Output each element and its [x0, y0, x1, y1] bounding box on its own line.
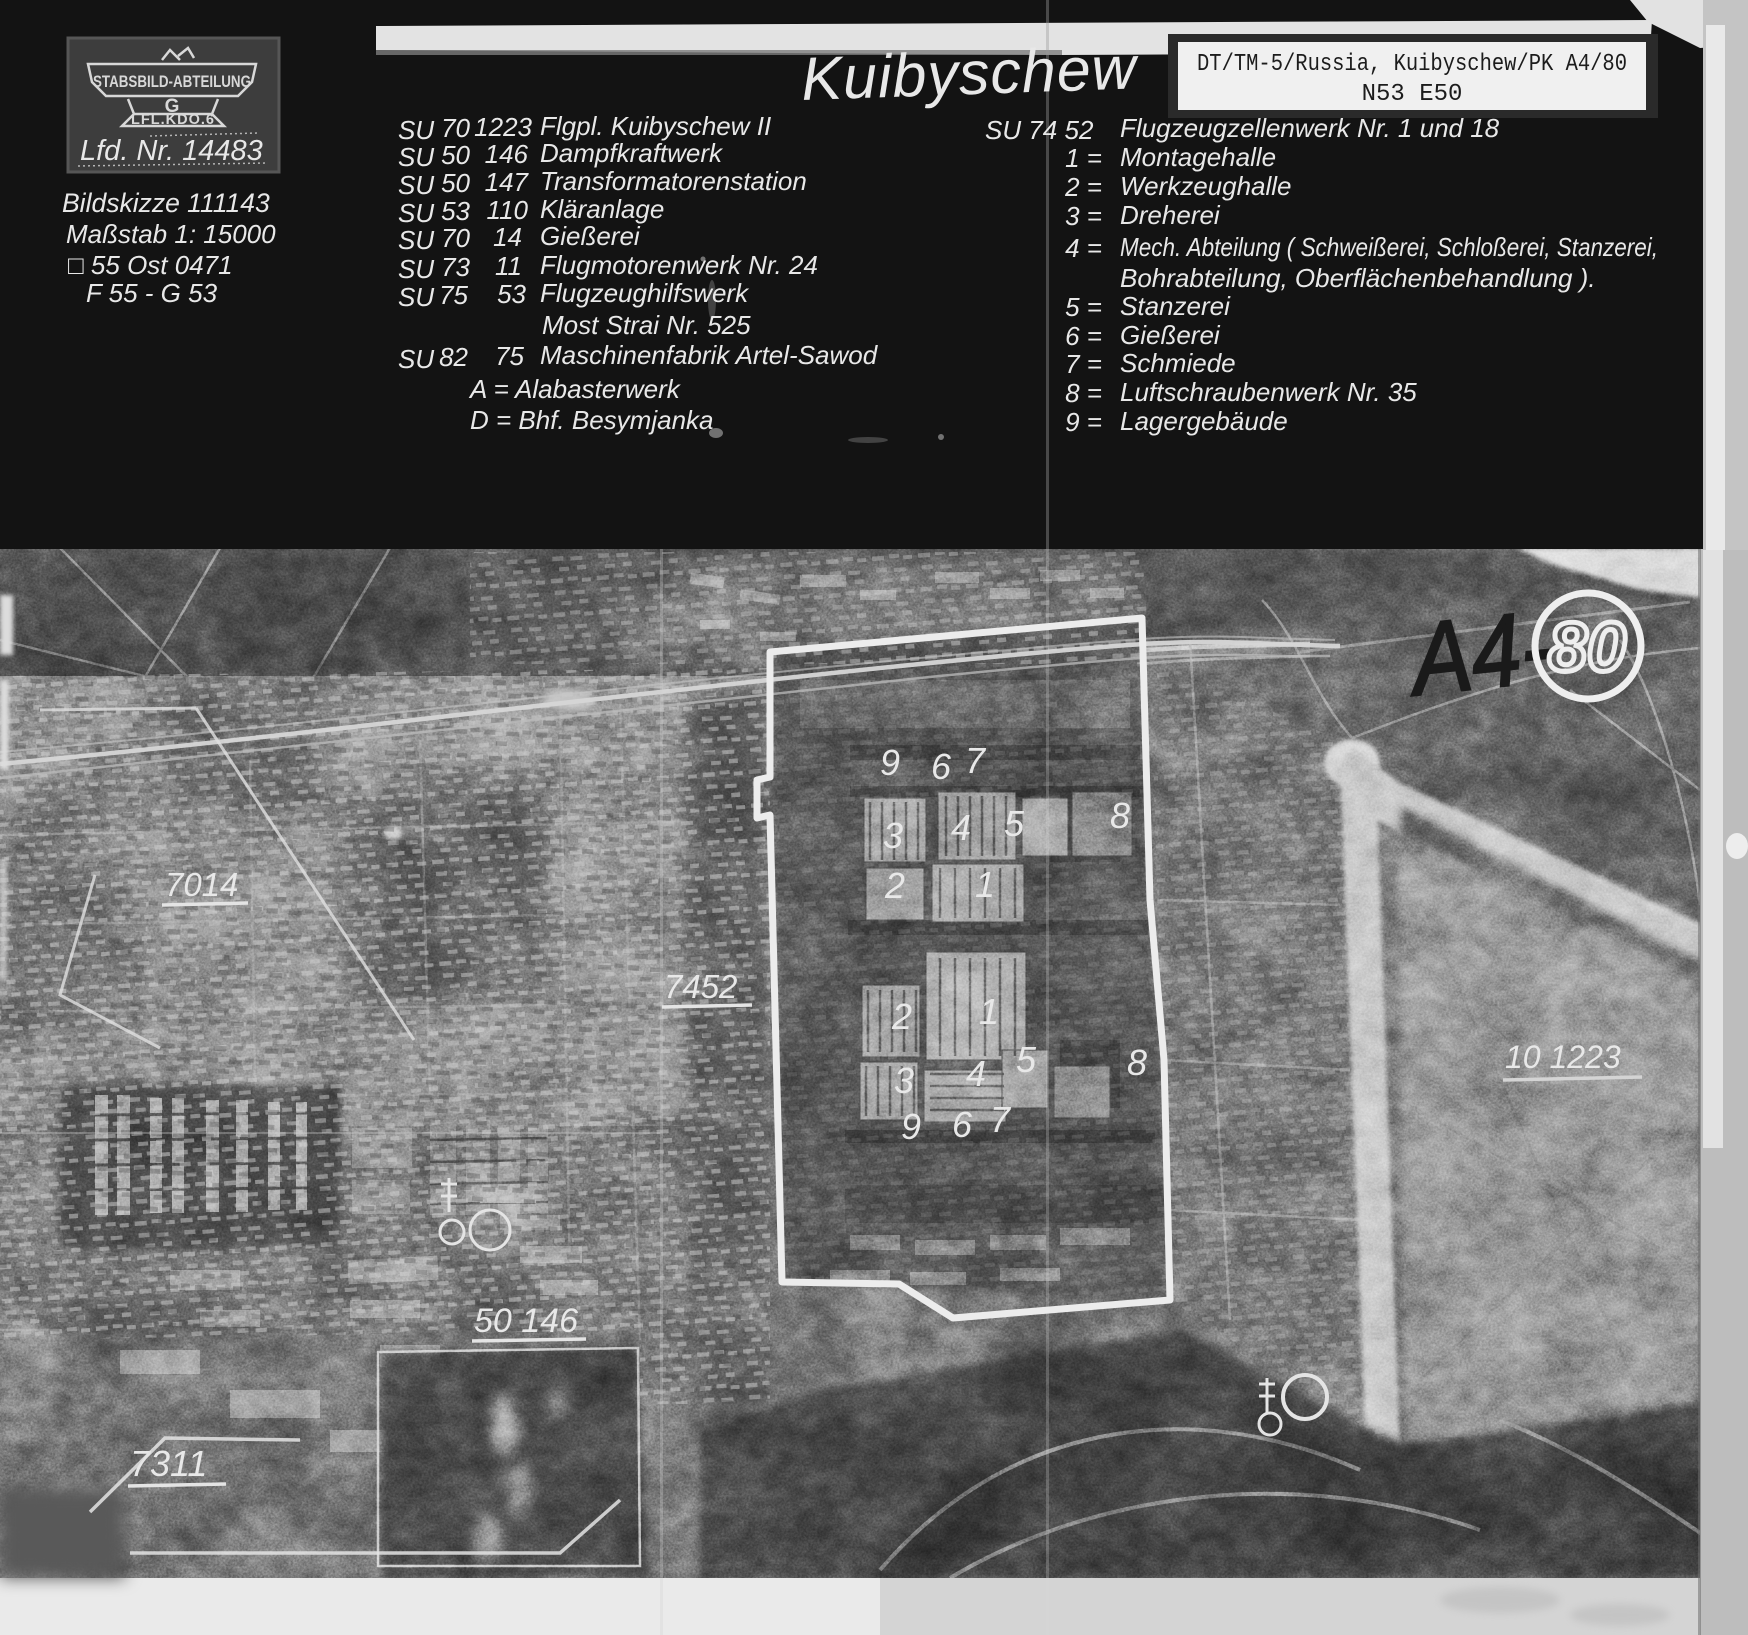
svg-text:SU: SU — [398, 115, 434, 145]
svg-text:14: 14 — [493, 222, 522, 252]
svg-text:9: 9 — [901, 1106, 921, 1147]
svg-text:Flugmotorenwerk Nr. 24: Flugmotorenwerk Nr. 24 — [540, 250, 818, 280]
svg-text:2: 2 — [884, 865, 905, 906]
svg-text:75: 75 — [495, 341, 524, 371]
svg-text:8: 8 — [1127, 1042, 1147, 1083]
svg-text:4 =: 4 = — [1065, 233, 1102, 263]
svg-text:6: 6 — [952, 1104, 973, 1145]
svg-text:Gießerei: Gießerei — [540, 221, 641, 251]
svg-text:SU: SU — [398, 344, 434, 374]
svg-text:Transformatorenstation: Transformatorenstation — [540, 166, 807, 196]
svg-text:1: 1 — [979, 991, 999, 1032]
svg-text:STABSBILD-ABTEILUNG: STABSBILD-ABTEILUNG — [93, 72, 251, 91]
svg-text:10 1223: 10 1223 — [1505, 1039, 1621, 1075]
svg-text:5 =: 5 = — [1065, 292, 1102, 322]
svg-text:LFL.KDO.6: LFL.KDO.6 — [131, 112, 215, 128]
svg-text:4: 4 — [951, 807, 971, 848]
svg-text:8: 8 — [1110, 795, 1130, 836]
svg-text:Flugzeughilfswerk: Flugzeughilfswerk — [540, 278, 750, 308]
svg-text:5: 5 — [1004, 803, 1025, 844]
svg-text:Flgpl. Kuibyschew II: Flgpl. Kuibyschew II — [540, 111, 771, 141]
svg-text:53: 53 — [441, 196, 470, 226]
svg-text:147: 147 — [485, 167, 530, 197]
svg-text:D = Bhf. Besymjanka: D = Bhf. Besymjanka — [470, 405, 714, 435]
svg-text:Maschinenfabrik Artel-Sawod: Maschinenfabrik Artel-Sawod — [540, 340, 879, 370]
svg-text:70: 70 — [441, 113, 470, 143]
svg-text:SU: SU — [398, 170, 434, 200]
svg-text:□ 55 Ost 0471: □ 55 Ost 0471 — [68, 250, 233, 280]
svg-text:82: 82 — [439, 342, 468, 372]
svg-text:53: 53 — [497, 279, 526, 309]
svg-text:Kuibyschew: Kuibyschew — [800, 33, 1141, 113]
svg-text:Montagehalle: Montagehalle — [1120, 142, 1276, 172]
svg-text:11: 11 — [495, 251, 522, 281]
svg-text:9 =: 9 = — [1065, 407, 1102, 437]
svg-text:SU: SU — [398, 198, 434, 228]
svg-text:SU: SU — [398, 225, 434, 255]
svg-text:Lagergebäude: Lagergebäude — [1120, 406, 1288, 436]
svg-text:Dampfkraftwerk: Dampfkraftwerk — [540, 138, 724, 168]
svg-text:146: 146 — [485, 139, 529, 169]
svg-text:Bohrabteilung, Oberflächenbeha: Bohrabteilung, Oberflächenbehandlung ). — [1120, 263, 1596, 293]
svg-text:70: 70 — [441, 223, 470, 253]
svg-text:DT/TM-5/Russia, Kuibyschew/PK: DT/TM-5/Russia, Kuibyschew/PK A4/80 — [1197, 51, 1627, 78]
svg-text:3: 3 — [883, 815, 903, 856]
svg-text:Maßstab 1: 15000: Maßstab 1: 15000 — [66, 219, 276, 249]
svg-text:Schmiede: Schmiede — [1120, 348, 1236, 378]
svg-text:80: 80 — [1548, 608, 1626, 686]
svg-text:Mech. Abteilung ( Schweißerei,: Mech. Abteilung ( Schweißerei, Schloßere… — [1120, 232, 1658, 262]
svg-text:2: 2 — [891, 996, 912, 1037]
svg-text:Stanzerei: Stanzerei — [1120, 291, 1231, 321]
svg-text:Bildskizze 111143: Bildskizze 111143 — [62, 188, 270, 218]
svg-text:73: 73 — [441, 252, 470, 282]
svg-text:75: 75 — [439, 280, 468, 310]
svg-text:3: 3 — [894, 1060, 914, 1101]
svg-text:SU: SU — [398, 282, 434, 312]
svg-text:A = Alabasterwerk: A = Alabasterwerk — [468, 374, 682, 404]
svg-text:3 =: 3 = — [1065, 201, 1102, 231]
svg-text:7 =: 7 = — [1065, 349, 1102, 379]
svg-text:110: 110 — [487, 195, 529, 225]
svg-text:7: 7 — [990, 1099, 1012, 1140]
svg-text:7014: 7014 — [165, 866, 238, 903]
svg-text:50: 50 — [441, 168, 470, 198]
svg-text:Dreherei: Dreherei — [1120, 200, 1221, 230]
svg-text:50 146: 50 146 — [474, 1302, 578, 1340]
svg-text:6 =: 6 = — [1065, 321, 1102, 351]
svg-text:SU 74 52: SU 74 52 — [985, 115, 1094, 145]
svg-text:50: 50 — [441, 140, 470, 170]
svg-text:7452: 7452 — [664, 968, 737, 1005]
svg-text:Lfd. Nr. 14483: Lfd. Nr. 14483 — [80, 135, 263, 167]
svg-text:N53 E50: N53 E50 — [1362, 81, 1463, 108]
svg-text:Kläranlage: Kläranlage — [540, 194, 664, 224]
svg-text:8 =: 8 = — [1065, 378, 1102, 408]
svg-text:7: 7 — [965, 740, 987, 781]
svg-text:1 =: 1 = — [1065, 143, 1102, 173]
svg-text:1: 1 — [975, 864, 995, 905]
svg-text:9: 9 — [880, 742, 900, 783]
svg-text:2 =: 2 = — [1064, 172, 1102, 202]
svg-text:Gießerei: Gießerei — [1120, 320, 1221, 350]
svg-text:SU: SU — [398, 254, 434, 284]
svg-text:F 55 - G 53: F 55 - G 53 — [86, 278, 218, 308]
svg-text:Luftschraubenwerk Nr. 35: Luftschraubenwerk Nr. 35 — [1120, 377, 1417, 407]
svg-text:SU: SU — [398, 142, 434, 172]
svg-text:1223: 1223 — [474, 112, 532, 142]
svg-text:Flugzeugzellenwerk Nr. 1 und 1: Flugzeugzellenwerk Nr. 1 und 18 — [1120, 113, 1500, 143]
svg-text:Most Strai Nr. 525: Most Strai Nr. 525 — [542, 310, 751, 340]
svg-text:6: 6 — [931, 746, 952, 787]
svg-text:Werkzeughalle: Werkzeughalle — [1120, 171, 1292, 201]
svg-text:4: 4 — [966, 1053, 986, 1094]
svg-text:5: 5 — [1016, 1039, 1037, 1080]
